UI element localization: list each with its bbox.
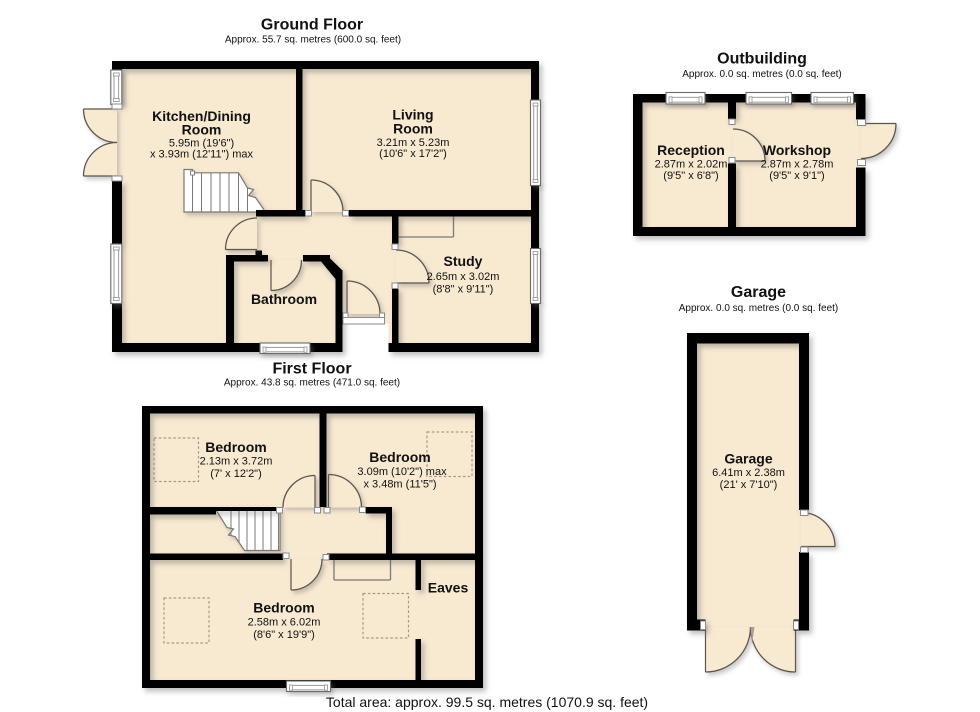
svg-text:Garage: Garage	[724, 451, 772, 467]
svg-text:(21' x 7'10"): (21' x 7'10")	[720, 479, 778, 491]
svg-text:x 3.93m (12'11") max: x 3.93m (12'11") max	[150, 149, 254, 161]
svg-text:Bedroom: Bedroom	[369, 449, 430, 465]
svg-text:(9'5" x 9'1"): (9'5" x 9'1")	[769, 170, 824, 182]
svg-text:Room: Room	[182, 122, 222, 138]
svg-text:Eaves: Eaves	[428, 580, 469, 596]
svg-text:Approx. 55.7 sq. metres (600.0: Approx. 55.7 sq. metres (600.0 sq. feet)	[225, 35, 401, 46]
svg-text:Reception: Reception	[657, 142, 725, 158]
svg-text:2.13m x 3.72m: 2.13m x 3.72m	[200, 456, 273, 468]
svg-text:6.41m x 2.38m: 6.41m x 2.38m	[712, 467, 785, 479]
svg-text:2.58m x 6.02m: 2.58m x 6.02m	[248, 617, 321, 629]
svg-text:Room: Room	[393, 121, 433, 137]
svg-text:(8'8" x 9'11"): (8'8" x 9'11")	[433, 284, 494, 296]
svg-text:2.87m x 2.02m: 2.87m x 2.02m	[655, 159, 728, 171]
svg-text:Study: Study	[444, 253, 483, 269]
svg-text:2.65m x 3.02m: 2.65m x 3.02m	[427, 271, 500, 283]
svg-text:2.87m x 2.78m: 2.87m x 2.78m	[761, 159, 834, 171]
svg-text:Bedroom: Bedroom	[253, 600, 314, 616]
svg-text:Bathroom: Bathroom	[251, 291, 317, 307]
svg-text:Approx. 0.0 sq. metres (0.0 sq: Approx. 0.0 sq. metres (0.0 sq. feet)	[682, 69, 842, 80]
svg-text:Bedroom: Bedroom	[205, 439, 266, 455]
svg-text:(7' x 12'2"): (7' x 12'2")	[210, 468, 262, 480]
svg-text:(9'5" x 6'8"): (9'5" x 6'8")	[663, 170, 718, 182]
svg-text:Outbuilding: Outbuilding	[717, 51, 807, 68]
svg-text:Total area: approx. 99.5 sq. m: Total area: approx. 99.5 sq. metres (107…	[326, 694, 648, 710]
svg-text:First Floor: First Floor	[272, 361, 351, 378]
svg-text:Approx. 43.8 sq. metres (471.0: Approx. 43.8 sq. metres (471.0 sq. feet)	[224, 378, 400, 389]
svg-text:Workshop: Workshop	[763, 142, 831, 158]
svg-text:Ground Floor: Ground Floor	[261, 17, 363, 34]
svg-text:Garage: Garage	[731, 284, 786, 301]
svg-text:x 3.48m (11'5"): x 3.48m (11'5")	[363, 479, 436, 491]
svg-text:Approx. 0.0 sq. metres (0.0 sq: Approx. 0.0 sq. metres (0.0 sq. feet)	[679, 303, 839, 314]
svg-text:3.09m (10'2") max: 3.09m (10'2") max	[357, 466, 447, 478]
svg-text:(10'6" x 17'2"): (10'6" x 17'2")	[379, 148, 447, 160]
svg-text:(8'6" x 19'9"): (8'6" x 19'9")	[253, 629, 315, 641]
